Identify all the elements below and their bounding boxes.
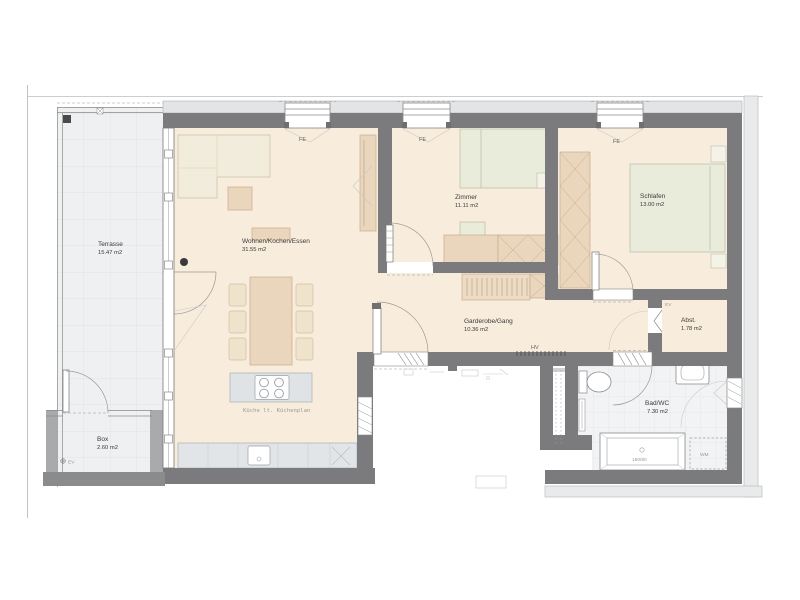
wm-label: WM	[700, 452, 709, 458]
ev-label-abst: EV	[665, 302, 672, 308]
corridor-sketch-marks	[404, 369, 508, 488]
room-label-terrasse: Terrasse	[98, 241, 123, 248]
zimmer-desk	[444, 235, 498, 263]
room-label-box: Box	[97, 436, 109, 443]
fe-label-zimmer: FE	[419, 137, 426, 143]
room-area-terrasse: 15.47 m2	[98, 250, 122, 256]
room-area-schlafen: 13.00 m2	[640, 202, 664, 208]
dining-table-set	[229, 277, 313, 365]
coffee-table	[228, 187, 252, 210]
fe-label-schlafen: FE	[613, 139, 620, 145]
room-label-wohnen: Wohnen/Kochen/Essen	[242, 238, 310, 245]
room-label-garderobe: Garderobe/Gang	[464, 318, 513, 325]
terrace-floor	[57, 103, 163, 487]
living-glass-wall	[163, 128, 174, 468]
floor-plan-page: Terrasse 15.47 m2 Wohnen/Kochen/Essen 31…	[0, 0, 800, 600]
bathtub-size-label: 180/80	[632, 457, 647, 463]
kitchen-counter	[178, 443, 357, 468]
kitchen-wall-vent	[358, 397, 372, 435]
installation-shaft	[553, 368, 565, 446]
toilet	[579, 371, 611, 393]
room-area-abst: 1.78 m2	[681, 326, 702, 332]
room-area-garderobe: 10.36 m2	[464, 327, 488, 333]
ev-label-box: EV	[68, 460, 75, 466]
zimmer-chair	[460, 222, 485, 236]
room-area-wohnen: 31.55 m2	[242, 247, 266, 253]
garderobe-wardrobe	[462, 274, 558, 300]
room-area-bad: 7.30 m2	[647, 409, 668, 415]
fe-label-living: FE	[299, 137, 306, 143]
column-dot	[180, 258, 188, 266]
bathroom-radiator	[579, 399, 585, 431]
schlafen-wardrobe	[560, 152, 590, 288]
bathtub	[600, 433, 685, 470]
kitchen-note-label: Küche lt. Küchenplan	[243, 408, 310, 414]
kitchen-island	[230, 373, 312, 402]
room-label-bad: Bad/WC	[645, 400, 670, 407]
zimmer-bed	[460, 129, 555, 188]
floor-plan-drawing: Terrasse 15.47 m2 Wohnen/Kochen/Essen 31…	[0, 0, 800, 600]
room-label-zimmer: Zimmer	[455, 194, 478, 201]
room-label-abst: Abst.	[681, 317, 696, 324]
room-area-zimmer: 11.11 m2	[455, 203, 478, 209]
room-label-schlafen: Schlafen	[640, 193, 666, 200]
hv-label: HV	[531, 345, 539, 351]
room-area-box: 2.60 m2	[97, 445, 118, 451]
